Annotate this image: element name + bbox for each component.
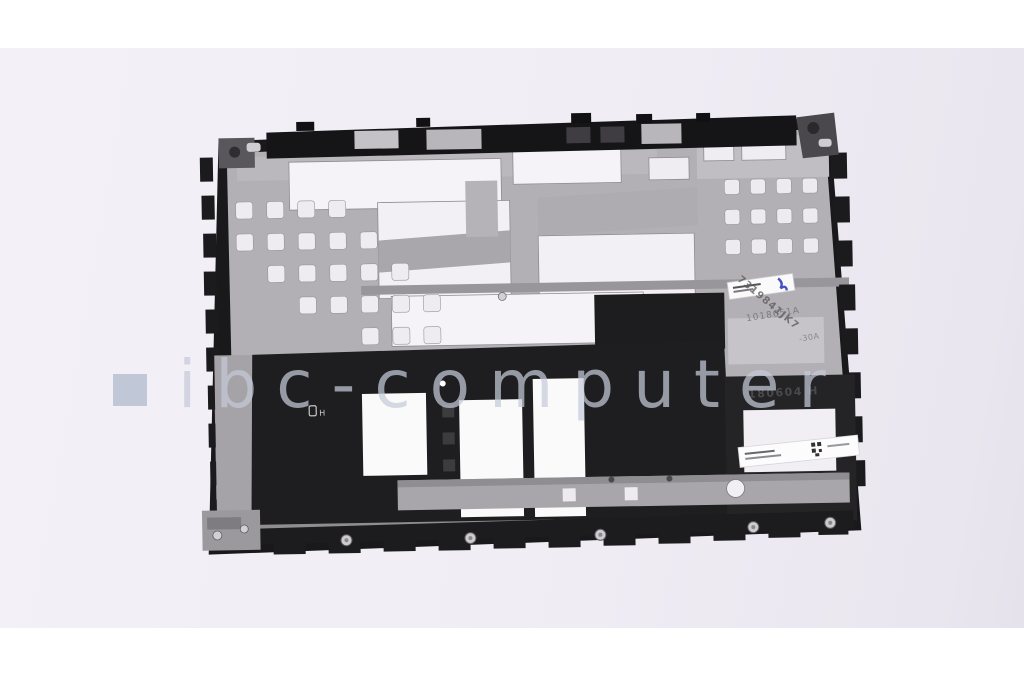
hinge-bottom-left — [202, 510, 261, 551]
watermark-square — [113, 374, 147, 406]
watermark-text: ibc-computer — [178, 348, 845, 422]
page: { "photo": { "alt": "Top-down product ph… — [0, 0, 1024, 680]
product-photo: H — [0, 48, 1024, 628]
structure-frame-graphic: H — [0, 48, 1024, 628]
hinge-top-right — [796, 113, 839, 159]
